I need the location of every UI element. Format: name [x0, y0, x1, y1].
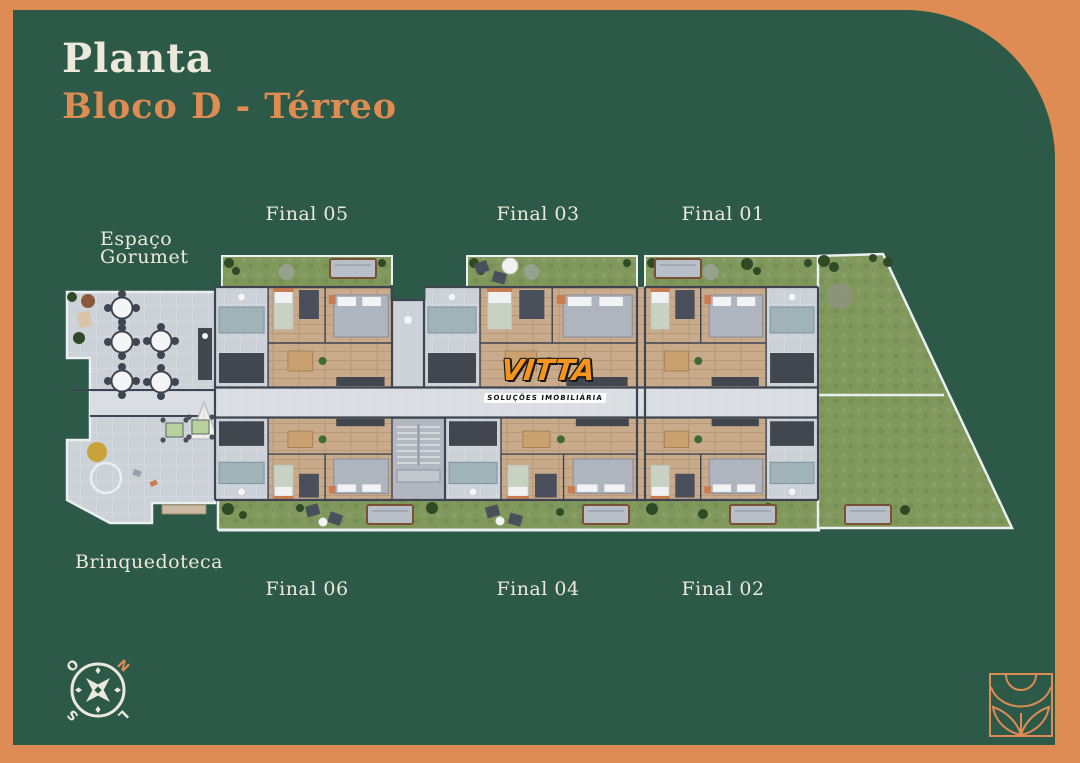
page-title: Planta	[62, 38, 397, 80]
unit-label-final-03: Final 03	[493, 203, 583, 225]
common-area	[67, 290, 218, 523]
unit-label-final-05: Final 05	[262, 203, 352, 225]
label-espaco-gourmet: Espaço Gorumet	[100, 230, 240, 266]
poster: { "title": { "line1": "Planta", "line2":…	[0, 0, 1080, 763]
garden-patches	[222, 256, 818, 287]
garden-right	[818, 254, 1012, 528]
unit-label-final-02: Final 02	[678, 578, 768, 600]
vitta-logo-tagline: SOLUÇÕES IMOBILIÁRIA	[484, 393, 607, 403]
unit-label-final-04: Final 04	[493, 578, 583, 600]
label-brinquedoteca: Brinquedoteca	[75, 551, 295, 573]
compass-rose: O N S L	[56, 648, 140, 732]
garden-bottom-strip	[218, 500, 820, 530]
vitta-logo: VITTA SOLUÇÕES IMOBILIÁRIA	[483, 355, 610, 404]
label-espaco-line2: Gorumet	[100, 246, 188, 268]
unit-label-final-01: Final 01	[678, 203, 768, 225]
flower-ornament-icon	[989, 673, 1053, 737]
vitta-logo-brand: VITTA	[485, 355, 610, 385]
title-block: Planta Bloco D - Térreo	[62, 38, 397, 127]
unit-label-final-06: Final 06	[262, 578, 352, 600]
page-subtitle: Bloco D - Térreo	[62, 86, 397, 127]
